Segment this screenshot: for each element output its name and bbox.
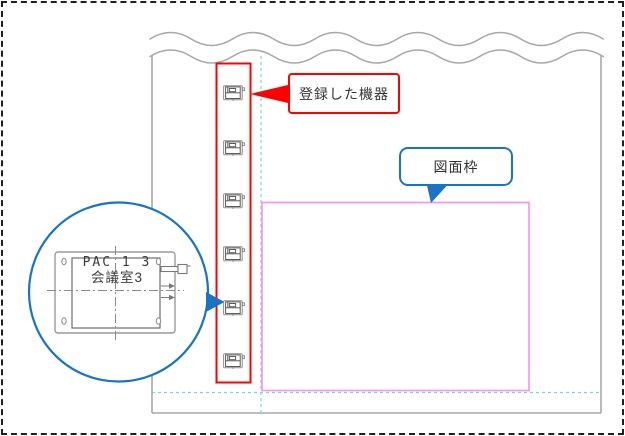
magnifier-pointer bbox=[206, 292, 225, 312]
torn-edge-wave-top bbox=[150, 33, 603, 46]
equipment-unit-icon bbox=[224, 301, 245, 316]
equipment-unit-icon bbox=[224, 354, 245, 369]
equipment-unit-icon bbox=[224, 247, 245, 262]
callout-drawing-frame: 図面枠 bbox=[399, 147, 513, 186]
figure-canvas: 登録した機器 図面枠 PAC 1 3 会議室3 bbox=[0, 0, 625, 436]
frame-callout-pointer bbox=[427, 186, 447, 204]
equipment-unit-icon bbox=[224, 194, 245, 209]
unit-bolt bbox=[62, 318, 66, 324]
registered-callout-arrow bbox=[250, 85, 288, 103]
unit-pipe-end-cap bbox=[178, 265, 187, 274]
callout-registered-equipment: 登録した機器 bbox=[288, 73, 400, 114]
equipment-unit-icon bbox=[224, 141, 245, 156]
unit-bolt bbox=[62, 258, 66, 264]
unit-bolt bbox=[156, 318, 160, 324]
magnified-equipment-unit bbox=[47, 246, 191, 340]
drawing-artwork bbox=[0, 0, 625, 436]
unit-bolt bbox=[156, 258, 160, 264]
drawing-frame-rect bbox=[262, 203, 529, 391]
callout-registered-equipment-label: 登録した機器 bbox=[299, 84, 389, 104]
callout-drawing-frame-label: 図面枠 bbox=[434, 157, 479, 177]
equipment-unit-icon bbox=[224, 86, 245, 101]
equipment-highlight-rect bbox=[217, 64, 251, 383]
unit-pipe-connection bbox=[161, 267, 178, 272]
torn-edge-wave-bottom bbox=[150, 50, 603, 63]
